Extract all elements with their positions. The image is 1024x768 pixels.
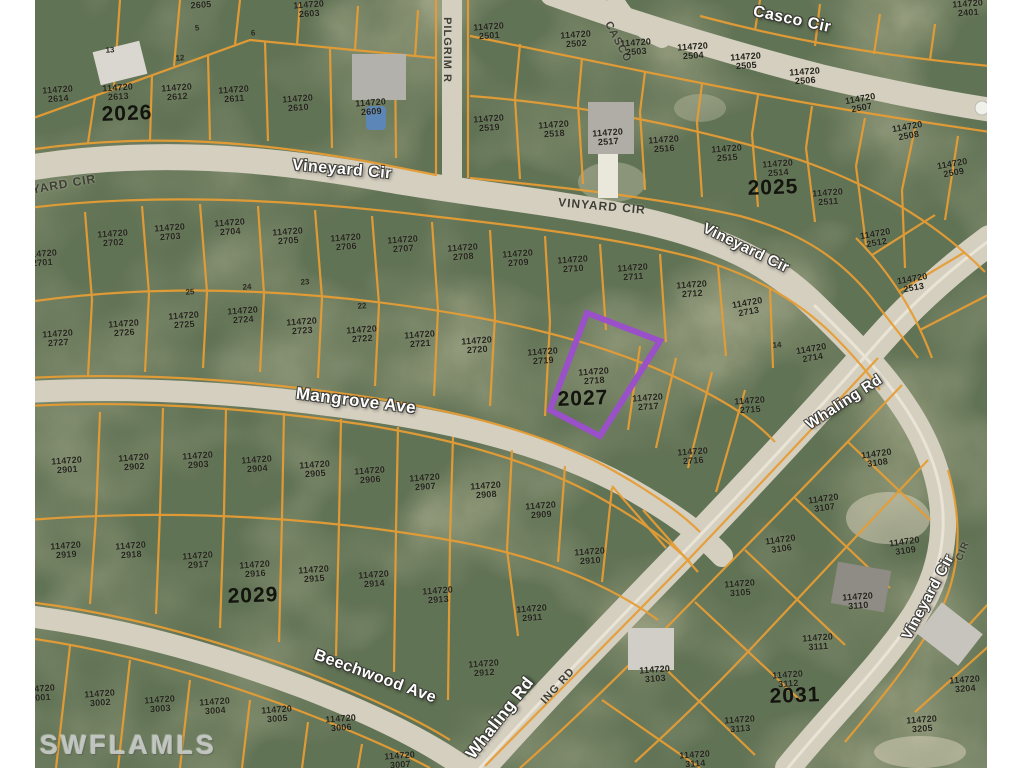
- watermark: SWFLAMLS: [40, 730, 217, 761]
- map-graphics: [35, 0, 987, 768]
- pool: [366, 106, 386, 130]
- screenshot-root: { "image": {"type": "aerial-parcel-map",…: [0, 0, 1024, 768]
- road-marker: [975, 101, 987, 115]
- driveway: [598, 154, 618, 198]
- house: [628, 628, 674, 670]
- aerial-parcel-map: Vineyard CirYARD CIRVINYARD CIRVineyard …: [35, 0, 987, 768]
- house: [352, 54, 406, 100]
- house: [588, 102, 634, 154]
